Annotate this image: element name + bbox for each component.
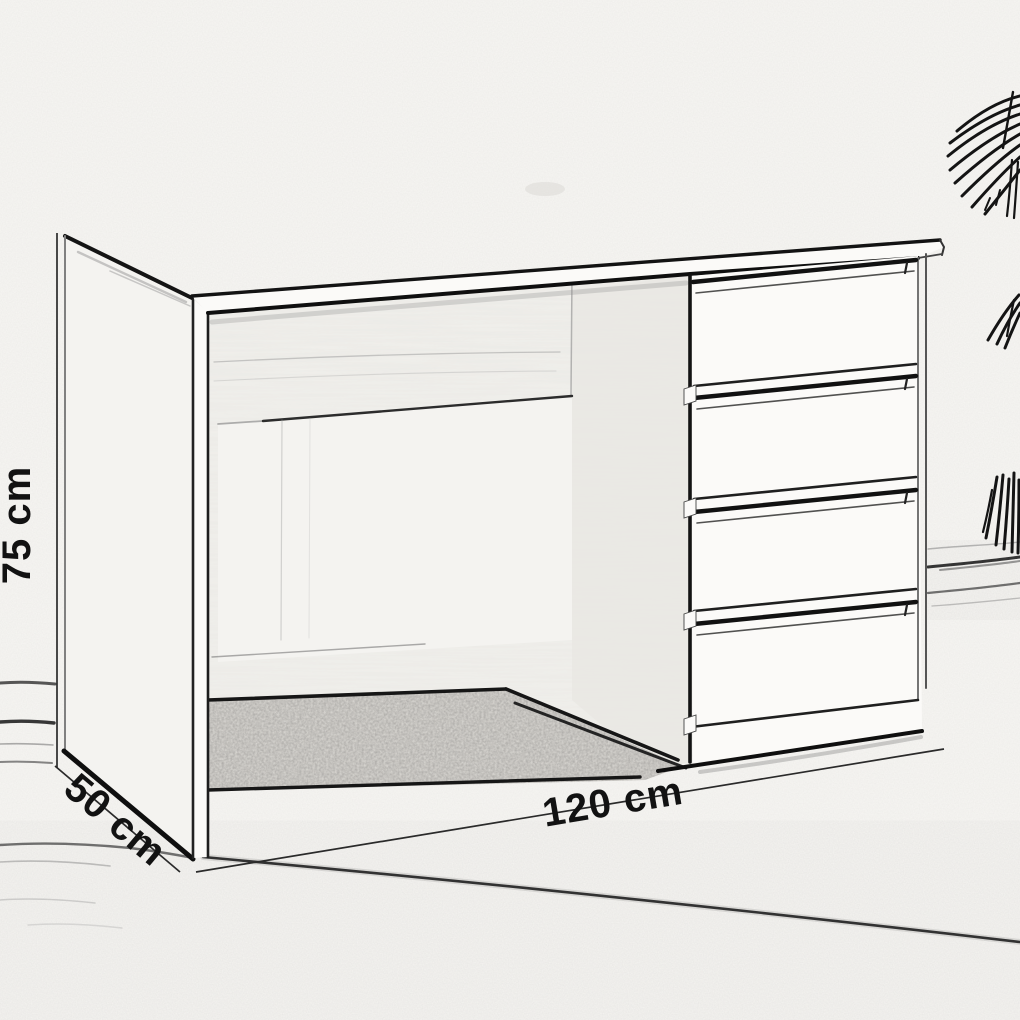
dimension-sketch-image: 75 cm 50 cm 120 cm [0, 0, 1020, 1020]
knee-hole-interior [205, 274, 690, 795]
height-dimension-label: 75 cm [0, 466, 39, 584]
sketch-svg: 75 cm 50 cm 120 cm [0, 0, 1020, 1020]
back-panel [212, 396, 572, 662]
drawer-unit [658, 254, 926, 772]
wall-smudge [525, 182, 565, 196]
